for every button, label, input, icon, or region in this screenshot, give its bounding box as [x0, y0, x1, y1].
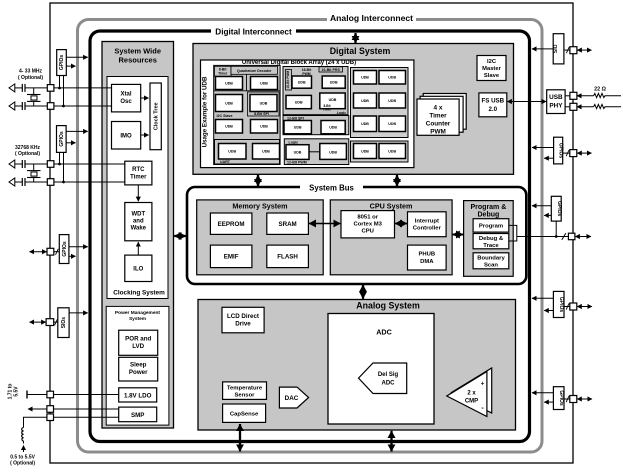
svg-text:Logic: Logic	[337, 111, 347, 115]
svg-text:1.71 to: 1.71 to	[8, 384, 14, 400]
svg-text:Del Sig: Del Sig	[378, 372, 399, 378]
svg-text:Timer: Timer	[429, 113, 447, 120]
svg-text:System: System	[129, 316, 146, 322]
svg-text:UDB: UDB	[330, 80, 338, 84]
svg-text:4 x: 4 x	[434, 105, 443, 112]
svg-text:GPIOs: GPIOs	[558, 143, 564, 159]
svg-text:Slave: Slave	[484, 73, 500, 79]
svg-text:Resources: Resources	[119, 56, 157, 65]
svg-text:System Bus: System Bus	[309, 184, 354, 193]
svg-text:UDB: UDB	[361, 122, 369, 126]
svg-text:4- 33 MHz: 4- 33 MHz	[19, 69, 43, 75]
svg-text:( Optional): ( Optional)	[15, 151, 40, 157]
svg-text:CMP: CMP	[465, 399, 478, 405]
svg-text:Memory System: Memory System	[232, 202, 287, 211]
svg-text:EEPROM: EEPROM	[218, 221, 245, 228]
svg-text:UART: UART	[220, 160, 231, 164]
svg-text:EMIF: EMIF	[224, 254, 239, 261]
svg-text:DMA: DMA	[420, 259, 434, 265]
svg-text:12-Bit SPI: 12-Bit SPI	[287, 116, 304, 120]
svg-text:Controller: Controller	[413, 226, 442, 232]
svg-text:Sensor: Sensor	[235, 393, 256, 399]
svg-text:UDB: UDB	[388, 99, 396, 103]
svg-text:16-Bit PWM: 16-Bit PWM	[286, 71, 290, 89]
svg-text:UDB: UDB	[294, 151, 302, 155]
svg-text:5.5V: 5.5V	[14, 386, 20, 397]
svg-text:Analog Interconnect: Analog Interconnect	[330, 13, 413, 23]
svg-text:and: and	[133, 219, 144, 225]
svg-text:Timer: Timer	[218, 72, 228, 76]
svg-text:UDB: UDB	[361, 99, 369, 103]
svg-text:Debug: Debug	[478, 212, 500, 219]
svg-text:UDB: UDB	[295, 100, 303, 104]
svg-text:IMO: IMO	[120, 134, 132, 140]
svg-text:Timer: Timer	[323, 107, 332, 111]
svg-text:UDB: UDB	[260, 125, 268, 129]
svg-text:Drive: Drive	[235, 320, 251, 327]
svg-text:Cortex M3: Cortex M3	[353, 221, 382, 227]
svg-text:FS USB: FS USB	[481, 98, 504, 105]
svg-text:I2C: I2C	[487, 59, 497, 65]
svg-text:UDB: UDB	[388, 76, 396, 80]
svg-text:SMP: SMP	[131, 412, 144, 419]
svg-text:1.8V LDO: 1.8V LDO	[124, 392, 152, 399]
svg-text:CPU System: CPU System	[370, 202, 413, 211]
svg-text:Xtal: Xtal	[120, 92, 131, 98]
svg-text:+: +	[481, 382, 485, 388]
svg-text:32768 KHz: 32768 KHz	[15, 145, 41, 151]
svg-text:Osc: Osc	[120, 99, 132, 105]
svg-text:UDB: UDB	[388, 122, 396, 126]
svg-text:2.0: 2.0	[488, 106, 497, 113]
svg-text:Boundary: Boundary	[477, 256, 505, 262]
svg-text:0.5 to 5.5V: 0.5 to 5.5V	[10, 454, 35, 460]
svg-text:UDB: UDB	[260, 81, 268, 85]
svg-text:GPIOs: GPIOs	[558, 297, 564, 313]
svg-text:( Optional): ( Optional)	[18, 75, 43, 81]
svg-text:8-Bit SPI: 8-Bit SPI	[254, 112, 269, 116]
svg-text:12-Bit PWM: 12-Bit PWM	[287, 161, 307, 165]
svg-text:I2C Slave: I2C Slave	[217, 114, 233, 118]
svg-text:DAC: DAC	[285, 395, 299, 402]
svg-text:22 Ω: 22 Ω	[594, 86, 606, 92]
svg-text:Quadrature Decoder: Quadrature Decoder	[237, 69, 272, 73]
svg-text:UDB: UDB	[388, 150, 396, 154]
svg-text:UDB: UDB	[298, 80, 306, 84]
svg-text:USB: USB	[549, 94, 563, 101]
svg-text:UDB: UDB	[329, 126, 337, 130]
svg-text:PHY: PHY	[549, 103, 563, 110]
svg-text:UDB: UDB	[361, 150, 369, 154]
svg-text:Logic: Logic	[289, 140, 299, 144]
svg-text:SIO: SIO	[553, 44, 559, 53]
svg-text:Counter: Counter	[426, 121, 451, 128]
svg-text:UDB: UDB	[329, 151, 337, 155]
svg-text:ILO: ILO	[133, 267, 143, 273]
svg-text:UDB: UDB	[225, 125, 233, 129]
svg-text:( Optional): ( Optional)	[10, 461, 35, 467]
svg-text:LCD Direct: LCD Direct	[227, 313, 259, 320]
svg-text:System Wide: System Wide	[114, 47, 161, 56]
svg-text:UDB: UDB	[262, 150, 270, 154]
svg-text:UDB: UDB	[228, 150, 236, 154]
svg-text:Digital Interconnect: Digital Interconnect	[215, 28, 292, 37]
svg-text:Analog System: Analog System	[356, 301, 420, 311]
svg-text:Master: Master	[482, 66, 501, 72]
svg-text:Sleep: Sleep	[130, 361, 147, 368]
svg-text:Scan: Scan	[484, 263, 498, 269]
svg-text:Clock Tree: Clock Tree	[154, 102, 160, 130]
svg-text:CPU: CPU	[361, 228, 373, 234]
svg-text:8051 or: 8051 or	[357, 214, 378, 220]
svg-text:Power: Power	[129, 369, 148, 376]
svg-text:UDB: UDB	[225, 81, 233, 85]
svg-text:SRAM: SRAM	[278, 221, 296, 228]
svg-text:WDT: WDT	[131, 212, 145, 218]
svg-text:Wake: Wake	[131, 226, 147, 232]
svg-text:UDB: UDB	[329, 98, 337, 102]
svg-text:Clocking System: Clocking System	[113, 290, 165, 297]
svg-text:Usage Example for UDB: Usage Example for UDB	[202, 76, 209, 147]
svg-text:ADC: ADC	[376, 328, 392, 337]
svg-text:16-Bit PRS: 16-Bit PRS	[322, 68, 341, 72]
svg-text:GPIOs: GPIOs	[556, 201, 562, 217]
svg-text:RTC: RTC	[132, 167, 145, 173]
svg-text:PWM: PWM	[430, 129, 446, 136]
svg-text:LVD: LVD	[132, 343, 144, 350]
svg-text:UDB: UDB	[225, 101, 233, 105]
svg-text:FLASH: FLASH	[277, 254, 298, 261]
svg-text:Power Management: Power Management	[115, 310, 160, 316]
svg-text:Interrupt: Interrupt	[415, 218, 439, 224]
svg-text:SIOs: SIOs	[61, 317, 67, 329]
svg-text:GPIOs: GPIOs	[558, 390, 564, 406]
svg-text:Debug &: Debug &	[479, 236, 504, 242]
svg-text:GPIOs: GPIOs	[59, 131, 65, 147]
svg-text:2 x: 2 x	[467, 391, 476, 397]
svg-text:POR and: POR and	[125, 336, 151, 343]
svg-text:GPIOs: GPIOs	[59, 55, 65, 71]
svg-text:Trace: Trace	[483, 243, 499, 249]
svg-text:UDB: UDB	[361, 76, 369, 80]
svg-text:Timer: Timer	[130, 174, 147, 180]
svg-text:ADC: ADC	[382, 381, 396, 387]
svg-text:UDB: UDB	[294, 126, 302, 130]
svg-text:Digital System: Digital System	[330, 46, 391, 56]
svg-text:GPIOs: GPIOs	[62, 241, 68, 257]
svg-text:PHUB: PHUB	[418, 252, 435, 258]
svg-text:Program: Program	[479, 224, 503, 230]
svg-text:Temperature: Temperature	[227, 385, 263, 391]
svg-text:CapSense: CapSense	[230, 412, 259, 418]
svg-text:UDB: UDB	[260, 101, 268, 105]
svg-text:Program &: Program &	[471, 204, 507, 211]
